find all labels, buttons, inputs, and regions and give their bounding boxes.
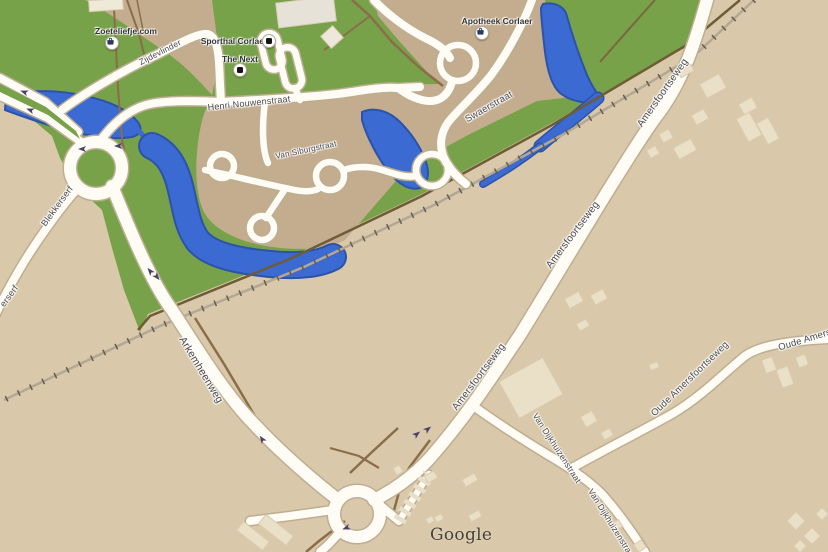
google-watermark: Google bbox=[430, 525, 492, 545]
poi-label-zoeteliefje[interactable]: Zoeteliefje.com bbox=[95, 26, 157, 36]
map-render bbox=[0, 0, 828, 552]
map-canvas[interactable]: Zijdevlinder Henri Nouwenstraat Swaerstr… bbox=[0, 0, 828, 552]
square-glyph bbox=[266, 38, 272, 44]
shopping-bag-icon[interactable] bbox=[475, 26, 489, 40]
poi-label-sporthal-corlaer[interactable]: Sporthal Corlaer bbox=[201, 36, 268, 46]
square-poi-icon[interactable] bbox=[262, 34, 276, 48]
square-glyph bbox=[237, 67, 243, 73]
shopping-bag-icon[interactable] bbox=[105, 36, 119, 50]
building bbox=[89, 0, 124, 12]
poi-label-apotheek-corlaer[interactable]: Apotheek Corlaer bbox=[462, 16, 533, 26]
square-poi-icon[interactable] bbox=[233, 63, 247, 77]
